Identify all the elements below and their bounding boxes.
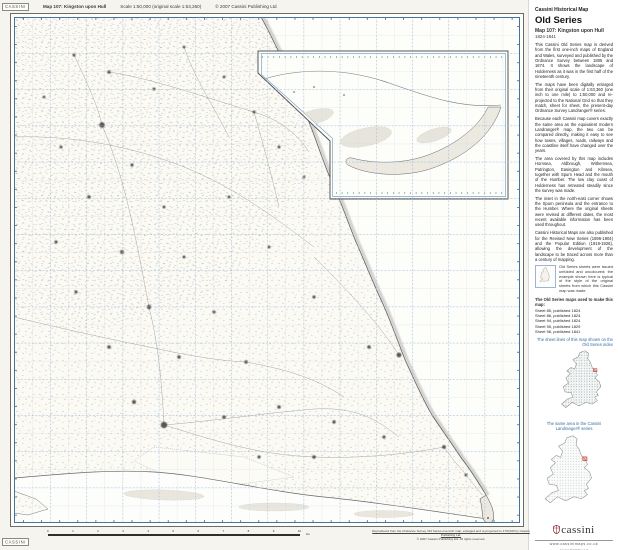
source-sheets-heading: The Old Series maps used to make this ma… [535, 297, 613, 307]
scale-label: 7 [223, 529, 225, 533]
description-paragraph: The area covered by this map includes Ho… [535, 156, 613, 193]
footer-attribution: Reproduced from the Ordnance Survey Old … [372, 529, 530, 542]
info-panel: Cassini Historical Map Old Series Map 10… [528, 0, 618, 550]
sheet-thumbnail-row: Old Series sheets were issued unfolded a… [535, 265, 613, 294]
cassini-brand: cassini [535, 521, 613, 541]
scale-bar-rule [48, 534, 300, 537]
scale-label: 6 [197, 529, 199, 533]
graticule-vertical [14, 17, 520, 523]
source-sheets-list: Sheet 85, published 1824 Sheet 86, publi… [535, 308, 613, 334]
attribution-line-2: © 2007 Cassini Publishing Ltd. All right… [372, 537, 530, 541]
description-paragraph: The inset in the north-east corner shows… [535, 196, 613, 228]
scale-bar-labels: 0 1 2 3 4 5 6 7 8 9 10 [47, 529, 301, 533]
scale-label: 10 [298, 529, 301, 533]
scale-label: 4 [147, 529, 149, 533]
source-sheet-item: Sheet 96, published 1841 [535, 329, 613, 334]
footer-logo: CASSINI [2, 530, 29, 548]
map-date-range: 1824-1841 [535, 34, 613, 39]
current-sheet-marker [583, 457, 587, 461]
description-paragraph: Because each Cassini map covers exactly … [535, 116, 613, 153]
thumbnail-caption: Old Series sheets were issued unfolded a… [559, 265, 613, 294]
scale-label: 9 [273, 529, 275, 533]
cassini-logo-small: CASSINI [2, 538, 29, 546]
scale-label: 5 [172, 529, 174, 533]
series-kicker: Cassini Historical Map [535, 7, 613, 13]
header-copyright: © 2007 Cassini Publishing Ltd [215, 4, 276, 9]
cassini-crest-icon [553, 525, 560, 534]
england-index-map-2 [543, 433, 605, 517]
map-sheet-frame [10, 13, 524, 527]
website-url: www.cassinimaps.co.uk [535, 542, 613, 546]
scale-bar-unit: km [306, 532, 310, 536]
old-series-index-caption: The sheet lines of this map shown on the… [535, 337, 613, 348]
old-series-sheet-thumbnail [535, 265, 556, 288]
scale-label: 8 [248, 529, 250, 533]
scale-bar: 0 1 2 3 4 5 6 7 8 9 10 km [48, 529, 300, 536]
landranger-index-caption: The same area in the Cassini Landranger®… [535, 421, 613, 432]
description-paragraph: Cassini Historical Maps are also publish… [535, 230, 613, 262]
scale-label: 3 [122, 529, 124, 533]
series-title: Old Series [535, 15, 613, 26]
map-canvas [14, 17, 520, 523]
scale-label: 0 [47, 529, 49, 533]
header-map-title: Map 107: Kingston upon Hull [43, 4, 106, 9]
scale-label: 2 [97, 529, 99, 533]
page: CASSINI Map 107: Kingston upon Hull Scal… [0, 0, 618, 550]
cassini-logo-small: CASSINI [2, 3, 29, 11]
historical-map-image [14, 17, 520, 523]
scale-label: 1 [72, 529, 74, 533]
england-outline-icon [539, 267, 553, 285]
brand-wordmark: cassini [561, 524, 594, 536]
landranger-index-map [535, 433, 613, 517]
header: CASSINI Map 107: Kingston upon Hull Scal… [2, 1, 524, 12]
description-paragraph: The maps have been digitally enlarged fr… [535, 82, 613, 114]
description-paragraph: This Cassini Old Series map is derived f… [535, 42, 613, 79]
attribution-line-1: Reproduced from the Ordnance Survey Old … [372, 529, 530, 537]
old-series-index-map [535, 349, 613, 419]
header-scale-info: Scale 1:50,000 (original scale 1:63,360) [120, 4, 201, 9]
current-sheet-marker [593, 369, 597, 372]
england-index-map-1 [559, 349, 613, 419]
